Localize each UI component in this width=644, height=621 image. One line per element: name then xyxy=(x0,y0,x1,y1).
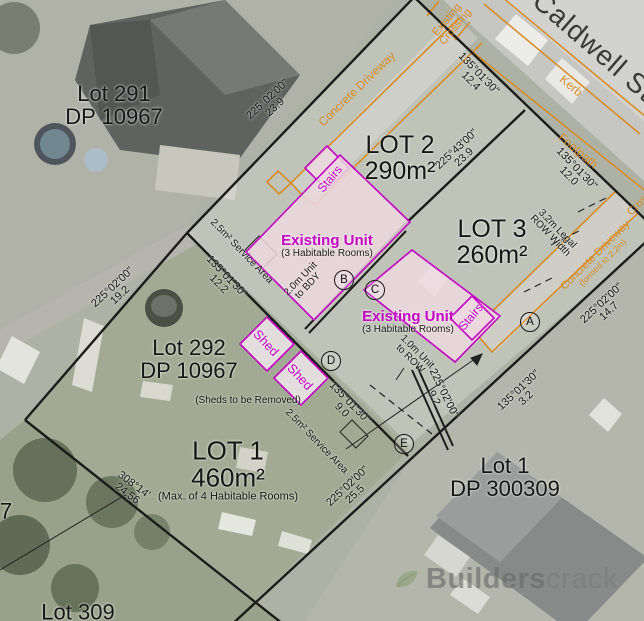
lot-291-label: Lot 291DP 10967 xyxy=(65,83,162,129)
lot-3-label: LOT 3260m² xyxy=(457,216,528,268)
marker-b: B xyxy=(334,270,354,290)
existing-unit2-label: Existing Unit (3 Habitable Rooms) xyxy=(362,309,454,335)
edge-partial-label: 7 xyxy=(0,501,12,524)
lot-1-new-label: LOT 1 460m² (Max. of 4 Habitable Rooms) xyxy=(158,437,298,503)
lot-292-label: Lot 292DP 10967 xyxy=(140,337,237,383)
marker-d: D xyxy=(321,351,341,371)
existing-unit1-label: Existing Unit (3 Habitable Rooms) xyxy=(281,233,373,259)
lot-309-label: Lot 309 xyxy=(41,602,114,621)
lot-2-label: LOT 2290m² xyxy=(365,132,436,184)
marker-c: C xyxy=(365,280,385,300)
marker-a: A xyxy=(520,312,540,332)
marker-e: E xyxy=(394,434,414,454)
sheds-removed-label: (Sheds to be Removed) xyxy=(195,396,301,406)
leaf-icon xyxy=(394,567,420,593)
site-plan: Existing Crossing Caldwell St Kerb Footp… xyxy=(0,0,644,621)
builderscrack-watermark: Builderscrack xyxy=(394,563,618,596)
lot-1-existing-label: Lot 1DP 300309 xyxy=(450,455,560,501)
